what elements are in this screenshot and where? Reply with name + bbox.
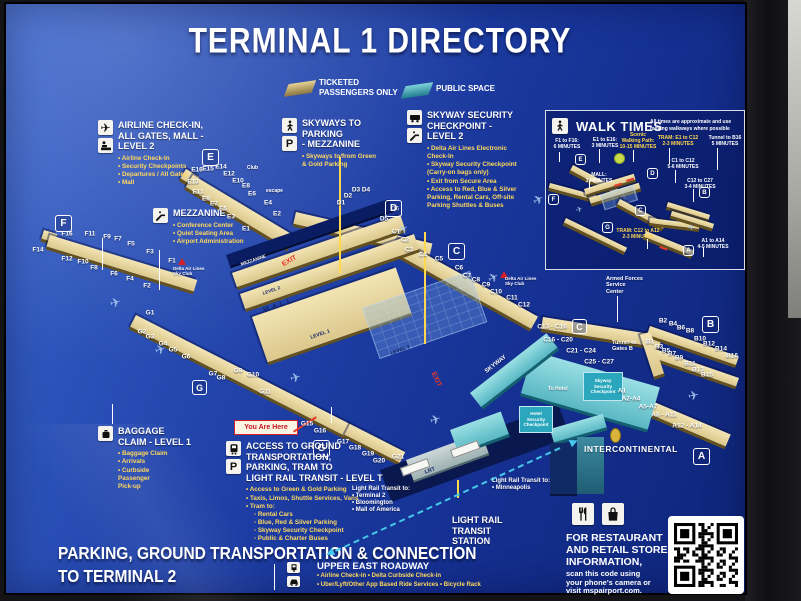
block-title: SKYWAYS TO PARKING - MEZZANINE: [302, 118, 376, 150]
checkpoint-box: Skyway Security Checkpoint: [583, 372, 623, 401]
block-content: ACCESS TO GROUND TRANSPORTATION, PARKING…: [246, 441, 383, 544]
icon-column: ✈: [98, 120, 113, 188]
gate-label: F12: [61, 256, 72, 263]
bullet-item: • Mall: [118, 179, 204, 187]
map-label: escape: [266, 189, 283, 195]
qr-code: [668, 516, 744, 594]
walk-time-entry: C12 to C27 3-4 MINUTES: [678, 178, 722, 190]
gate-label: D2: [344, 193, 352, 200]
gate-label: B9: [675, 355, 683, 362]
block-title: ACCESS TO GROUND TRANSPORTATION, PARKING…: [246, 441, 383, 483]
concourse-badge-E: E: [575, 154, 586, 165]
icon-column: [407, 110, 422, 210]
gate-label: D4: [362, 187, 370, 194]
gate-label: A1: [618, 388, 626, 395]
block-bullets: • Conference Center• Quiet Seating Area•…: [173, 222, 244, 247]
info-block-skyway-security: SKYWAY SECURITY CHECKPOINT - LEVEL 2• De…: [407, 110, 517, 210]
escalator-icon: [153, 208, 168, 223]
gate-label: E2: [273, 211, 281, 218]
gate-label: C9: [482, 282, 490, 289]
gate-label: G3: [146, 334, 155, 341]
concourse-badge-D: D: [647, 168, 658, 179]
gate-label: C25 - C27: [584, 359, 614, 366]
gate-label: C2: [401, 237, 409, 244]
gate-label: G15: [301, 421, 313, 428]
gate-label: C1: [392, 229, 400, 236]
gate-label: F6: [110, 271, 118, 278]
gate-label: B1: [646, 339, 654, 346]
wall-background: [788, 0, 801, 318]
escalator-icon: [407, 128, 422, 143]
bullet-item: • Tram to:: [246, 503, 383, 511]
walker-icon: [552, 118, 568, 134]
block-content: AIRLINE CHECK-IN, ALL GATES, MALL - LEVE…: [118, 120, 204, 188]
gate-label: E15: [202, 166, 214, 173]
leader-line: [159, 250, 160, 290]
gate-label: F10: [77, 259, 88, 266]
gate-label: B2: [659, 318, 667, 325]
concourse-badge-D: D: [385, 200, 402, 217]
gate-label: A12 - A14: [672, 423, 701, 430]
concourse-badge-C: C: [572, 319, 587, 334]
block-title: MEZZANINE: [173, 208, 244, 219]
gate-label: G8: [217, 375, 226, 382]
car-icon: [287, 576, 300, 587]
gate-label: G16: [314, 428, 326, 435]
gate-label: E8: [242, 183, 250, 190]
gate-label: F3: [146, 249, 154, 256]
info-block-skyways-parking: PSKYWAYS TO PARKING - MEZZANINE• Skyways…: [282, 118, 376, 169]
leader-line: [633, 150, 634, 162]
bullet-item: • Skyways to/from Green & Gold Parking: [302, 153, 376, 169]
concourse-badge-F: F: [55, 215, 72, 232]
gate-label: F2: [143, 283, 151, 290]
page-title: TERMINAL 1 DIRECTORY: [155, 22, 605, 62]
leader-line: [717, 148, 718, 170]
map-label: To Hotel: [548, 387, 568, 393]
bullet-item: • Access to Red, Blue & Silver Parking, …: [427, 186, 517, 211]
photo-of-terminal-directory-sign: TERMINAL 1 DIRECTORY WALK TIMES All time…: [0, 0, 801, 601]
gate-label: E6: [248, 191, 256, 198]
leader-line: [675, 170, 676, 183]
concourse-badge-F: F: [548, 194, 559, 205]
kiosk-icon: [287, 562, 300, 573]
icon-column: [153, 208, 168, 246]
gate-label: A8 - A11: [651, 412, 676, 419]
roadway-bullets-line2: • Uber/Lyft/Other App Based Ride Service…: [317, 582, 481, 588]
gate-label: B15: [701, 372, 713, 379]
block-title: AIRLINE CHECK-IN, ALL GATES, MALL - LEVE…: [118, 120, 204, 152]
gate-label: D3: [352, 187, 360, 194]
legend-label-public: PUBLIC SPACE: [436, 84, 495, 94]
restaurant-retail-heading: FOR RESTAURANT AND RETAIL STORE INFORMAT…: [566, 533, 668, 568]
gate-label: C5: [435, 256, 443, 263]
gate-label: B16: [726, 353, 738, 360]
gate-label: D1: [337, 200, 345, 207]
leader-line: [617, 296, 618, 322]
bullet-item: • Quiet Seating Area: [173, 230, 244, 238]
block-title: SKYWAY SECURITY CHECKPOINT - LEVEL 2: [427, 110, 517, 142]
concourse-badge-C: C: [448, 243, 465, 260]
walk-time-entry: Tunnel to B16 5 MINUTES: [706, 135, 744, 147]
walk-time-entry: MALL: 3 MINUTES: [582, 172, 616, 184]
leader-line: [339, 157, 341, 273]
gate-label: A2-A4: [622, 396, 641, 403]
baggage-icon: [98, 426, 113, 441]
leader-line: [424, 232, 426, 344]
gate-label: C11: [506, 295, 518, 302]
block-content: MEZZANINE• Conference Center• Quiet Seat…: [173, 208, 244, 246]
restaurant-retail-body: scan this code using your phone's camera…: [566, 570, 651, 596]
counter-icon: [98, 138, 113, 153]
map-label: Tunnel to Gates B: [612, 340, 636, 353]
bullet-item: • Airline Check-In: [118, 155, 204, 163]
you-are-here-marker: You Are Here: [234, 420, 298, 435]
gate-label: F1: [168, 258, 176, 265]
concourse-badge-G: G: [192, 380, 207, 395]
gate-label: C3: [405, 247, 413, 254]
leader-line: [331, 407, 332, 423]
scenic-path-marker: [614, 153, 625, 164]
gate-label: G21: [392, 454, 404, 461]
airplane-icon: ✈: [98, 120, 113, 135]
gate-label: B8: [686, 328, 694, 335]
gate-label: F14: [32, 247, 43, 254]
info-block-checkin: ✈AIRLINE CHECK-IN, ALL GATES, MALL - LEV…: [98, 120, 204, 188]
leader-line: [693, 189, 694, 202]
gate-label: F11: [85, 231, 96, 238]
gate-label: G11: [259, 389, 271, 396]
map-label: LIGHT RAIL TRANSIT STATION: [452, 515, 503, 547]
qr-pattern: [674, 523, 738, 587]
walk-time-entry: TRAM: C12 to A12 2-3 MINUTES: [610, 228, 666, 240]
block-bullets: • Baggage Claim• Arrivals• Curbside Pass…: [118, 450, 191, 491]
gate-label: F5: [127, 241, 135, 248]
gate-label: G6: [182, 354, 191, 361]
icon-column: P: [282, 118, 297, 169]
bullet-item: - Skyway Security Checkpoint: [246, 527, 383, 535]
block-content: BAGGAGE CLAIM - LEVEL 1• Baggage Claim• …: [118, 426, 191, 491]
roadway-bullets-line1: • Airline Check-in • Delta Curbside Chec…: [317, 573, 441, 579]
gate-label: G5: [169, 347, 178, 354]
bullet-item: - Blue, Red & Silver Parking: [246, 519, 383, 527]
map-label: INTERCONTINENTAL: [584, 444, 678, 454]
info-block-mezzanine: MEZZANINE• Conference Center• Quiet Seat…: [153, 208, 244, 246]
train-icon: [226, 441, 241, 456]
map-label: Club: [247, 166, 258, 172]
gate-label: G4: [159, 341, 168, 348]
parking-icon: P: [226, 459, 241, 474]
map-label: Armed Forces Service Center: [606, 276, 643, 295]
gate-label: G10: [247, 372, 259, 379]
sky-club-marker-icon: [178, 258, 186, 265]
block-title: BAGGAGE CLAIM - LEVEL 1: [118, 426, 191, 447]
leader-line: [112, 404, 113, 424]
gate-label: E11: [192, 189, 203, 196]
walk-time-entry: F1 to F16: 6 MINUTES: [549, 138, 585, 150]
concourse-badge-E: E: [202, 149, 219, 166]
gate-label: E7: [210, 201, 218, 208]
gate-label: C8: [472, 277, 480, 284]
gate-label: C10: [490, 289, 502, 296]
map-label: Delta Air Lines Sky Club: [173, 266, 204, 277]
gate-label: C6: [455, 265, 463, 272]
block-bullets: • Access to Green & Gold Parking• Taxis,…: [246, 486, 383, 543]
parking-icon: P: [282, 136, 297, 151]
concourse-badge-A: A: [693, 448, 710, 465]
bullet-item: • Arrivals: [118, 458, 191, 466]
shuttle-icon: [407, 110, 422, 125]
bullet-item: • Airport Administration: [173, 238, 244, 246]
gate-label: E4: [264, 200, 272, 207]
gate-label: C7: [463, 273, 471, 280]
icon-column: P: [226, 441, 241, 544]
gate-label: C13 - C16: [537, 324, 567, 331]
bullet-item: • Exit from Secure Area: [427, 178, 517, 186]
gate-label: C12: [518, 302, 530, 309]
upper-east-roadway-title: UPPER EAST ROADWAY: [317, 561, 429, 572]
gate-label: F4: [126, 276, 134, 283]
hotel-logo-marker: [610, 428, 621, 443]
leader-line: [647, 239, 648, 249]
legend-label-ticketed: TICKETED PASSENGERS ONLY: [319, 78, 398, 97]
gate-label: E12: [223, 171, 235, 178]
leader-line: [559, 152, 560, 162]
leader-line: [102, 238, 103, 270]
bullet-item: - Rental Cars: [246, 511, 383, 519]
concourse-badge-B: B: [702, 316, 719, 333]
leader-line: [274, 564, 275, 590]
walk-times-subtitle: All times are approximate and use moving…: [650, 119, 740, 132]
walk-time-entry: TRAM: E1 to C12 2-3 MINUTES: [652, 135, 704, 147]
gate-label: C16 - C20: [543, 337, 573, 344]
bullet-item: • Curbside Passenger Pick-up: [118, 467, 191, 492]
block-content: SKYWAYS TO PARKING - MEZZANINE• Skyways …: [302, 118, 376, 169]
bullet-item: • Conference Center: [173, 222, 244, 230]
gate-label: C4: [419, 252, 427, 259]
gate-label: F9: [103, 234, 111, 241]
gate-label: G1: [146, 310, 155, 317]
bullet-item: • Access to Green & Gold Parking: [246, 486, 383, 494]
retail-bag-icon: [602, 503, 624, 525]
block-bullets: • Airline Check-In• Security Checkpoints…: [118, 155, 204, 188]
walk-time-entry: C1 to C12 5-6 MINUTES: [662, 158, 704, 170]
block-bullets: • Delta Air Lines Electronic Check-In• S…: [427, 145, 517, 210]
walker-icon: [282, 118, 297, 133]
restaurant-icon: [572, 503, 594, 525]
concourse-badge-C: C: [635, 205, 646, 216]
icon-column: [98, 426, 113, 491]
block-bullets: • Skyways to/from Green & Gold Parking: [302, 153, 376, 169]
block-content: SKYWAY SECURITY CHECKPOINT - LEVEL 2• De…: [427, 110, 517, 210]
gate-label: B6: [677, 325, 685, 332]
gate-label: C21 - C24: [566, 348, 596, 355]
bullet-item: - Public & Charter Buses: [246, 535, 383, 543]
gate-label: E9: [202, 196, 210, 203]
walk-time-entry: A1 to A14 4-5 MINUTES: [692, 238, 734, 250]
map-label: Delta Air Lines Sky Club: [505, 276, 536, 287]
bullet-item: • Security Checkpoints: [118, 163, 204, 171]
map-label: Light Rail Transit to: • Minneapolis: [492, 478, 550, 492]
info-block-ground-transport: PACCESS TO GROUND TRANSPORTATION, PARKIN…: [226, 441, 383, 544]
gate-label: F7: [114, 236, 122, 243]
gate-label: B12: [703, 341, 715, 348]
bullet-item: • Taxis, Limos, Shuttle Services, Vans: [246, 495, 383, 503]
gate-label: A5-A7: [639, 404, 658, 411]
info-block-baggage-claim: BAGGAGE CLAIM - LEVEL 1• Baggage Claim• …: [98, 426, 191, 491]
bullet-item: • Departures / All Gates: [118, 171, 204, 179]
bullet-item: • Delta Air Lines Electronic Check-In: [427, 145, 517, 161]
checkpoint-box: Hotel Security Checkpoint: [519, 406, 553, 433]
gate-label: B14: [715, 346, 727, 353]
gate-label: F8: [90, 265, 98, 272]
leader-line: [599, 149, 600, 163]
bullet-item: • Baggage Claim: [118, 450, 191, 458]
bullet-item: • Skyway Security Checkpoint (Carry-on b…: [427, 161, 517, 177]
gate-label: G9: [234, 368, 243, 375]
